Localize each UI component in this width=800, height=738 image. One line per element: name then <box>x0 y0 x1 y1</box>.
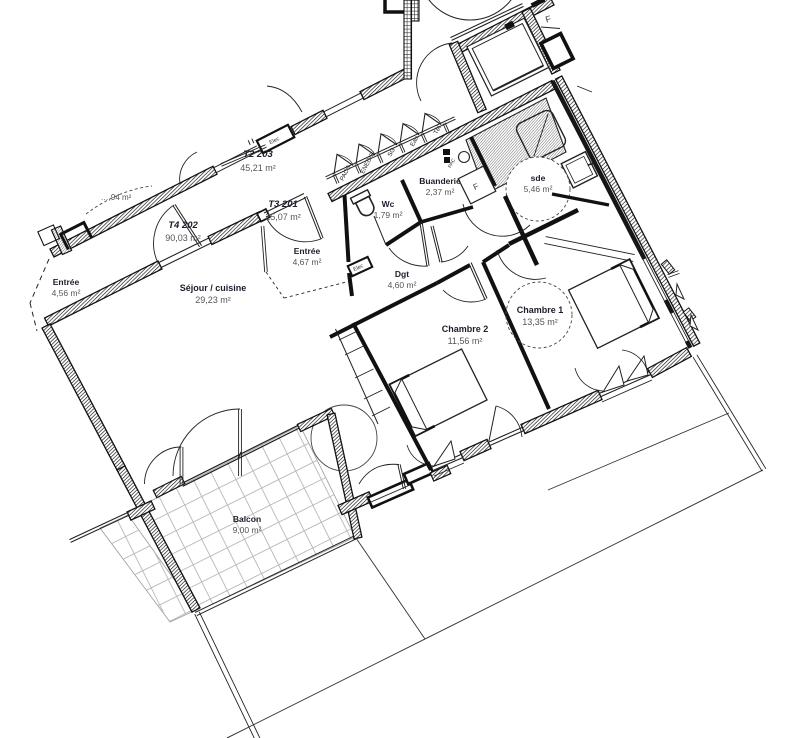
svg-text:4,67 m²: 4,67 m² <box>293 257 322 267</box>
svg-text:Entrée: Entrée <box>294 246 321 256</box>
svg-text:13,35 m²: 13,35 m² <box>522 317 558 327</box>
svg-text:5,46 m²: 5,46 m² <box>524 184 553 194</box>
svg-text:T3 201: T3 201 <box>268 199 298 210</box>
svg-text:sde: sde <box>531 173 546 183</box>
svg-text:Chambre 2: Chambre 2 <box>442 324 489 334</box>
svg-text:F: F <box>544 13 552 24</box>
svg-text:1,79 m²: 1,79 m² <box>374 210 403 220</box>
svg-text:T2 203: T2 203 <box>243 149 273 160</box>
svg-text:PACS: PACS <box>339 164 353 182</box>
svg-text:Dgt: Dgt <box>395 269 409 279</box>
svg-text:Wc: Wc <box>382 199 395 209</box>
svg-text:25,07 m²: 25,07 m² <box>265 212 301 222</box>
svg-text:Balcon: Balcon <box>233 514 261 524</box>
svg-text:29,23 m²: 29,23 m² <box>195 295 231 305</box>
svg-text:Buanderie: Buanderie <box>419 176 461 186</box>
svg-text:45,21 m²: 45,21 m² <box>240 163 276 173</box>
svg-text:Séjour / cuisine: Séjour / cuisine <box>180 283 247 293</box>
svg-text:90,03 m²: 90,03 m² <box>165 233 201 243</box>
svg-text:…,94 m²: …,94 m² <box>101 193 132 202</box>
svg-text:4,56 m²: 4,56 m² <box>52 288 81 298</box>
svg-text:Entrée: Entrée <box>53 277 80 287</box>
svg-text:9,00 m²: 9,00 m² <box>233 525 262 535</box>
svg-text:11,56 m²: 11,56 m² <box>448 336 483 346</box>
svg-text:4,60 m²: 4,60 m² <box>388 280 417 290</box>
svg-text:T4 202: T4 202 <box>168 220 198 231</box>
svg-text:Chambre 1: Chambre 1 <box>517 305 564 315</box>
svg-text:2,37 m²: 2,37 m² <box>426 187 455 197</box>
